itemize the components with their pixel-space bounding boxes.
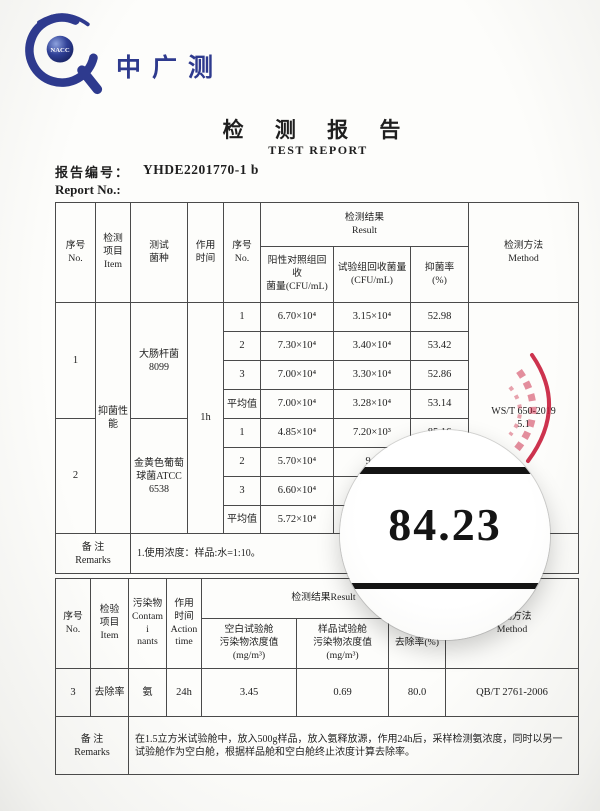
cell-subno: 2 — [224, 448, 261, 477]
t1-header-positive-count: 阳性对照组回收 菌量(CFU/mL) — [261, 247, 334, 303]
cell-time: 1h — [188, 303, 224, 534]
cell-no: 3 — [56, 669, 91, 717]
report-no-value: YHDE2201770-1 b — [143, 162, 259, 178]
t1-header-method: 检测方法 Method — [469, 203, 579, 303]
cell-test: 3.30×10⁴ — [334, 361, 411, 390]
cell-group2-strain: 金黄色葡萄 球菌ATCC 6538 — [131, 419, 188, 534]
cell-positive: 6.60×10⁴ — [261, 477, 334, 506]
t2-remarks-text: 在1.5立方米试验舱中，放入500g样品，放入氨释放源，作用24h后，采样检测氨… — [129, 717, 579, 775]
t1-header-inhibition-rate: 抑菌率 (%) — [411, 247, 469, 303]
cell-blank-value: 3.45 — [202, 669, 297, 717]
lab-logo-text: 中广测 — [116, 48, 224, 84]
cell-time: 24h — [167, 669, 202, 717]
cell-rate: 53.14 — [411, 390, 469, 419]
cell-removal-rate: 80.0 — [389, 669, 446, 717]
t1-header-strain: 测试 菌种 — [131, 203, 188, 303]
t1-header-no: 序号 No. — [56, 203, 96, 303]
cell-method: QB/T 2761-2006 — [446, 669, 579, 717]
cell-subno: 平均值 — [224, 506, 261, 534]
cell-positive: 5.72×10⁴ — [261, 506, 334, 534]
t1-remarks-label: 备 注 Remarks — [56, 534, 131, 574]
table-row: 3 去除率 氨 24h 3.45 0.69 80.0 QB/T 2761-200… — [56, 669, 579, 717]
cell-subno: 3 — [224, 361, 261, 390]
cell-group1-no: 1 — [56, 303, 96, 419]
cell-positive: 4.85×10⁴ — [261, 419, 334, 448]
t1-header-subno: 序号 No. — [224, 203, 261, 303]
cell-positive: 7.00×10⁴ — [261, 390, 334, 419]
cell-group1-strain: 大肠杆菌 8099 — [131, 303, 188, 419]
lab-logo: NACC 中广测 — [18, 8, 288, 98]
cell-subno: 1 — [224, 303, 261, 332]
t1-header-item: 检测 项目 Item — [96, 203, 131, 303]
t2-header-blank-chamber: 空白试验舱 污染物浓度值 (mg/m³) — [202, 619, 297, 669]
cell-subno: 2 — [224, 332, 261, 361]
logo-swirl-icon: NACC — [18, 8, 104, 98]
report-no-label-en: Report No.: — [55, 182, 121, 198]
t2-header-item: 检验 项目 Item — [91, 579, 129, 669]
t2-header-time: 作用 时间 Action time — [167, 579, 202, 669]
page-subtitle: TEST REPORT — [0, 143, 600, 158]
page-title: 检 测 报 告 — [0, 114, 600, 144]
cell-rate: 52.98 — [411, 303, 469, 332]
cell-positive: 5.70×10⁴ — [261, 448, 334, 477]
cell-positive: 7.00×10⁴ — [261, 361, 334, 390]
cell-rate: 53.42 — [411, 332, 469, 361]
magnified-value: 84.23 — [340, 498, 550, 551]
cell-sample-value: 0.69 — [297, 669, 389, 717]
cell-item: 去除率 — [91, 669, 129, 717]
t2-header-contaminant: 污染物 Contami nants — [129, 579, 167, 669]
t2-header-sample-chamber: 样品试验舱 污染物浓度值 (mg/m³) — [297, 619, 389, 669]
t2-header-no: 序号 No. — [56, 579, 91, 669]
cell-test: 3.15×10⁴ — [334, 303, 411, 332]
report-no-label-zh: 报告编号： — [55, 162, 130, 181]
cell-test: 3.40×10⁴ — [334, 332, 411, 361]
magnified-border-top-line — [340, 467, 550, 474]
cell-subno: 平均值 — [224, 390, 261, 419]
t1-header-time: 作用 时间 — [188, 203, 224, 303]
cell-rate: 52.86 — [411, 361, 469, 390]
cell-positive: 6.70×10⁴ — [261, 303, 334, 332]
cell-subno: 3 — [224, 477, 261, 506]
nacc-badge-label: NACC — [50, 47, 69, 54]
cell-test: 3.28×10⁴ — [334, 390, 411, 419]
table-row: 1 抑菌性 能 大肠杆菌 8099 1h 1 6.70×10⁴ 3.15×10⁴… — [56, 303, 579, 332]
cell-positive: 7.30×10⁴ — [261, 332, 334, 361]
t2-remarks-label: 备 注 Remarks — [56, 717, 129, 775]
cell-group2-no: 2 — [56, 419, 96, 534]
magnifier-circle: 84.23 — [340, 430, 550, 640]
table-row: 备 注 Remarks 在1.5立方米试验舱中，放入500g样品，放入氨释放源，… — [56, 717, 579, 775]
cell-item: 抑菌性 能 — [96, 303, 131, 534]
cell-subno: 1 — [224, 419, 261, 448]
cell-contaminant: 氨 — [129, 669, 167, 717]
magnified-border-bottom-line — [340, 583, 550, 589]
t1-header-result: 检测结果 Result — [261, 203, 469, 247]
t1-header-test-count: 试验组回收菌量 (CFU/mL) — [334, 247, 411, 303]
